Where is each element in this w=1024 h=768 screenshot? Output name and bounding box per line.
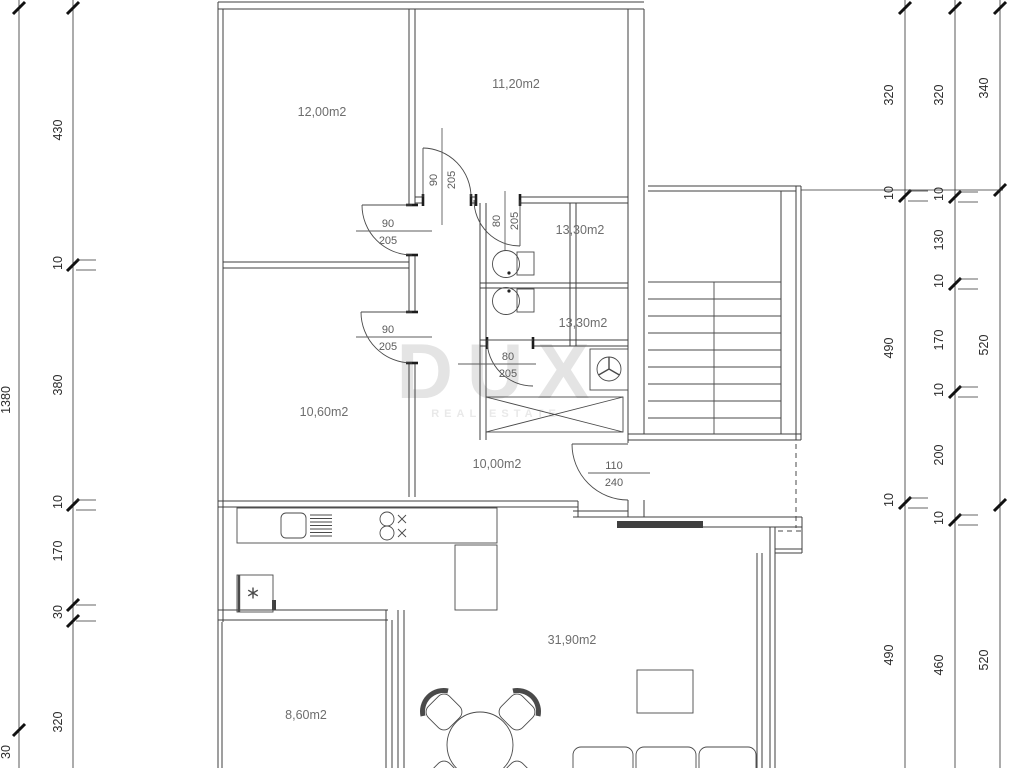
room-label-living: 31,90m2: [548, 633, 597, 647]
sofa-cushion: [699, 747, 756, 768]
dining-chair: [423, 758, 466, 768]
floor-plan-page: DUX REAL ESTATE 1380 30 430 10 380 10 17…: [0, 0, 1024, 768]
dishwasher-hatch: [310, 515, 332, 536]
dim-left-2: 380: [51, 375, 65, 396]
dim-rb-5: 10: [932, 383, 946, 397]
dining-chair: [423, 691, 466, 734]
dim-left-6: 320: [51, 712, 65, 733]
dim-left-0: 430: [51, 120, 65, 141]
overhang-dashed-line: [778, 444, 802, 531]
dining-chair: [496, 691, 539, 734]
dim-rb-2: 130: [932, 230, 946, 251]
room-label-room-d: 13,30m2: [559, 316, 608, 330]
living-furniture: [423, 670, 756, 768]
burner-icon: [380, 526, 394, 540]
dim-rb-6: 200: [932, 445, 946, 466]
dim-total: 1380: [0, 386, 13, 414]
dim-rc-1: 520: [977, 335, 991, 356]
dim-ra-1: 10: [882, 186, 896, 200]
dim-left-5: 30: [51, 605, 65, 619]
dim-rb-4: 170: [932, 330, 946, 351]
burner-icon: [380, 512, 394, 526]
room-label-bedroom-b: 11,20m2: [492, 77, 540, 91]
entry-door-width: 110: [605, 460, 623, 472]
dim-rb-8: 460: [932, 655, 946, 676]
dim-left-1: 10: [51, 256, 65, 270]
dimension-chain-right-c: 340 520 520: [977, 0, 1006, 768]
dim-ra-4: 490: [882, 645, 896, 666]
toilet-bowl: [493, 288, 520, 315]
kitchen-sink: [281, 513, 306, 538]
dim-ra-3: 10: [882, 493, 896, 507]
dim-rb-0: 320: [932, 85, 946, 106]
door-a-width: 90: [428, 174, 440, 186]
dimension-chain-right-b: 320 10 130 10 170 10 200 10 460: [932, 0, 978, 768]
sofa-cushion: [636, 747, 696, 768]
door-d-width: 80: [491, 215, 503, 227]
dim-rc-2: 520: [977, 650, 991, 671]
dim-left-4: 170: [51, 541, 65, 562]
dimension-chain-right-a: 320 10 490 10 490: [882, 0, 928, 768]
door-b-height: 205: [379, 235, 397, 247]
door-a: 90 205: [423, 128, 471, 225]
floor-plan-drawing: DUX REAL ESTATE 1380 30 430 10 380 10 17…: [0, 0, 1024, 768]
room-label-bedroom-e: 10,60m2: [300, 405, 349, 419]
toilet-flush-dot: [507, 289, 510, 292]
kitchen-counter: [237, 508, 497, 543]
staircase: [648, 186, 801, 440]
toilet-bowl: [493, 251, 520, 278]
dim-rc-0: 340: [977, 78, 991, 99]
dimension-chain-left-overall: 1380 30: [0, 0, 25, 768]
door-d-height: 205: [509, 212, 521, 230]
room-label-terrace: 8,60m2: [285, 708, 327, 722]
door-c-height: 205: [379, 341, 397, 353]
door-b: 90 205: [356, 205, 432, 255]
door-c-width: 90: [382, 324, 394, 336]
door-a-height: 205: [446, 171, 458, 189]
dimension-chain-left: 430 10 380 10 170 30 320: [51, 0, 96, 768]
dim-total-seg: 30: [0, 745, 13, 759]
kitchen: [237, 508, 497, 612]
dim-rb-3: 10: [932, 274, 946, 288]
fridge-asterisk-icon: [248, 588, 258, 599]
burner-cross-icon: [398, 515, 406, 537]
room-label-hallway: 10,00m2: [473, 457, 522, 471]
sofa-cushion: [573, 747, 633, 768]
dim-left-3: 10: [51, 495, 65, 509]
room-label-room-c: 13,30m2: [556, 223, 605, 237]
room-label-bedroom-a: 12,00m2: [298, 105, 347, 119]
toilet-flush-dot: [507, 271, 510, 274]
door-b-width: 90: [382, 218, 394, 230]
coffee-table: [637, 670, 693, 713]
entry-door-height: 240: [605, 477, 623, 489]
dim-ra-0: 320: [882, 85, 896, 106]
dim-rb-7: 10: [932, 511, 946, 525]
door-e-width: 80: [502, 351, 514, 363]
dining-chair: [496, 758, 539, 768]
dim-rb-1: 10: [932, 187, 946, 201]
entry-door: 110 240: [572, 444, 650, 500]
door-d: 80 205: [474, 191, 521, 251]
counter-return: [455, 545, 497, 610]
dim-ra-2: 490: [882, 338, 896, 359]
door-e-height: 205: [499, 368, 517, 380]
window-glazing: [617, 521, 703, 528]
